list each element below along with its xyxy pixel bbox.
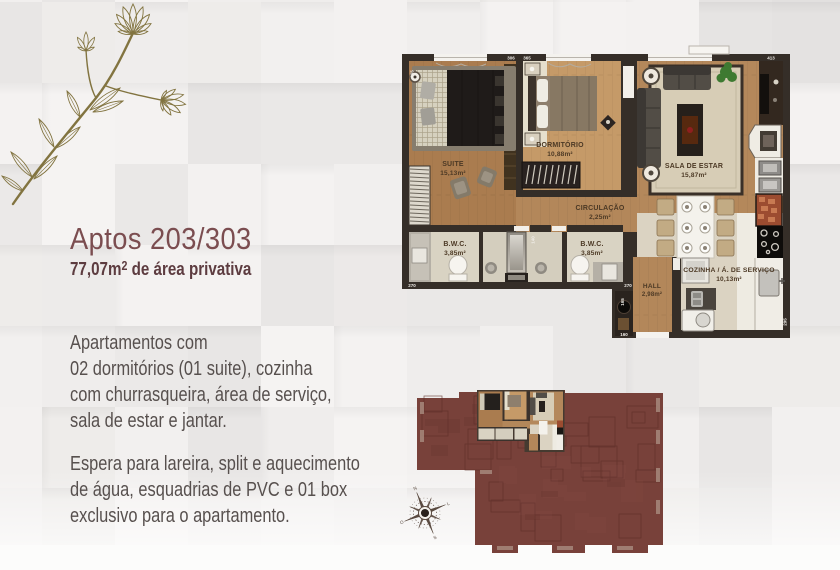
svg-text:B.W.C.: B.W.C. (443, 241, 466, 248)
svg-text:DORMITÓRIO: DORMITÓRIO (536, 140, 584, 149)
svg-text:359: 359 (624, 70, 629, 78)
svg-text:2,98m²: 2,98m² (642, 291, 662, 298)
svg-text:270: 270 (408, 283, 416, 288)
svg-text:B.W.C.: B.W.C. (580, 241, 603, 248)
svg-text:160: 160 (620, 332, 628, 337)
svg-text:413: 413 (767, 56, 775, 61)
svg-text:COZINHA / Á. DE SERVIÇO: COZINHA / Á. DE SERVIÇO (683, 265, 774, 274)
svg-text:365: 365 (523, 56, 531, 61)
svg-text:295: 295 (783, 318, 788, 326)
svg-text:306: 306 (507, 56, 515, 61)
svg-text:HALL: HALL (643, 283, 661, 290)
svg-text:270: 270 (624, 283, 632, 288)
svg-text:3,85m²: 3,85m² (581, 250, 603, 257)
svg-text:10,13m²: 10,13m² (716, 276, 742, 283)
svg-text:SUITE: SUITE (442, 161, 464, 168)
svg-text:150: 150 (695, 327, 703, 332)
svg-text:140: 140 (531, 236, 536, 244)
svg-text:465: 465 (410, 70, 415, 78)
svg-text:10,88m²: 10,88m² (547, 151, 573, 158)
svg-text:CIRCULAÇÃO: CIRCULAÇÃO (575, 203, 624, 212)
svg-text:SALA DE ESTAR: SALA DE ESTAR (665, 163, 723, 170)
svg-text:3,85m²: 3,85m² (444, 250, 466, 257)
svg-text:15,87m²: 15,87m² (681, 172, 707, 179)
svg-text:165: 165 (620, 298, 625, 306)
svg-text:2,25m²: 2,25m² (589, 214, 611, 221)
svg-text:15,13m²: 15,13m² (440, 170, 466, 177)
